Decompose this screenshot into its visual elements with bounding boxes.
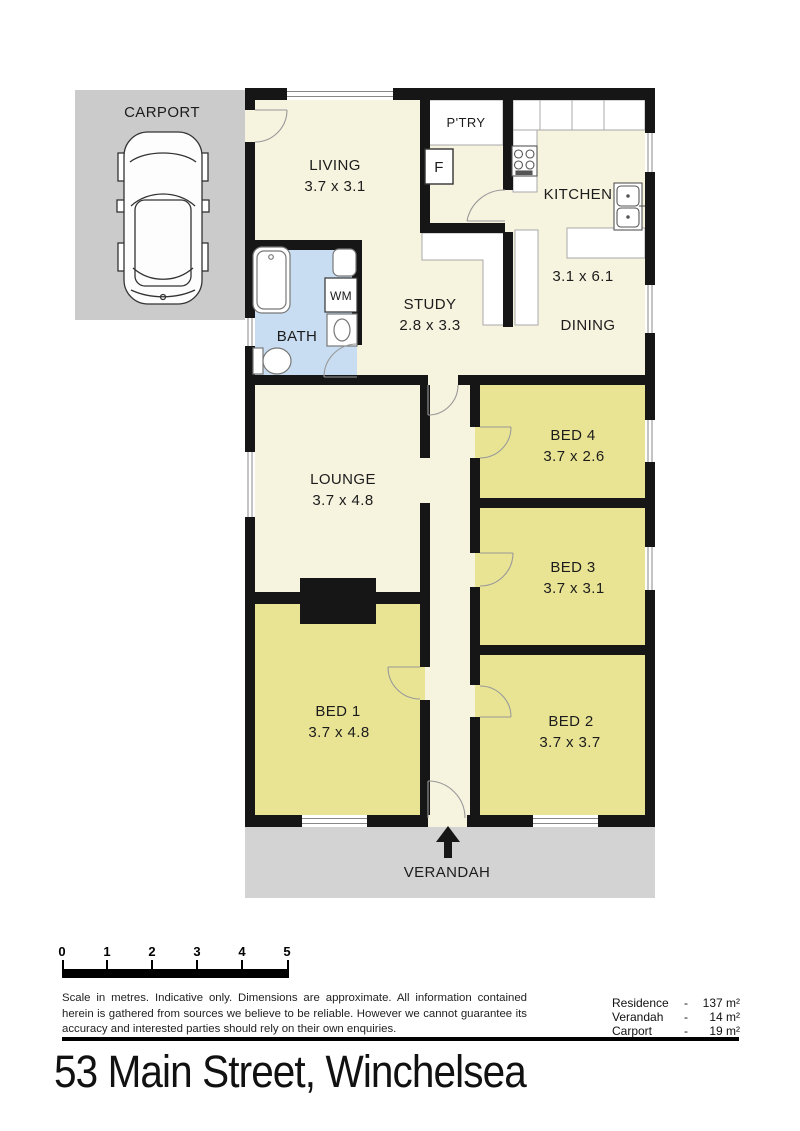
wall-hall-right-a [470,385,480,427]
pantry-label: P'TRY [447,115,486,130]
area-dash: - [684,1010,688,1024]
bathtub-icon [253,247,290,313]
scale-bar-rule [62,969,289,978]
area-label: Verandah [612,1010,682,1024]
fireplace [300,578,376,624]
bed1-dims: 3.7 x 4.8 [308,724,369,741]
basin-icon [333,249,356,276]
bath-label: BATH [277,328,318,345]
carport-area [75,90,245,320]
bed3-label: BED 3 [550,559,595,576]
window-bed3-right [645,547,655,590]
window-living-top [287,88,393,100]
carport-label: CARPORT [124,104,200,121]
scale-tick-label-0: 0 [58,944,65,959]
wm-label: WM [330,289,352,303]
study-dims: 2.8 x 3.3 [399,317,460,334]
area-row-carport: Carport - 19 m² [612,1024,740,1038]
bed2-label: BED 2 [548,713,593,730]
scale-tick-label-1: 1 [103,944,110,959]
bed1-label: BED 1 [315,703,360,720]
wall-bed3-bed2 [470,645,655,655]
wall-mid-right [458,375,655,385]
scale-tick [287,960,289,969]
dining-bench [567,228,645,258]
area-value: 137 m² [694,996,740,1010]
area-summary: Residence - 137 m² Verandah - 14 m² Carp… [612,996,740,1038]
bed3-dims: 3.7 x 3.1 [543,580,604,597]
scale-tick [62,960,64,969]
toilet-icon [253,348,291,374]
study-label: STUDY [404,296,457,313]
bed2-dims: 3.7 x 3.7 [539,734,600,751]
kitchen-bench-top [513,100,645,130]
opening-carport-door [245,110,255,142]
window-lounge-left [245,452,255,517]
scale-tick [106,960,108,969]
verandah-label: VERANDAH [404,864,491,881]
area-value: 14 m² [694,1010,740,1024]
wall-living-study [420,223,505,233]
fridge-label: F [434,159,444,176]
window-bath-left [245,318,255,346]
area-label: Residence [612,996,682,1010]
disclaimer-text: Scale in metres. Indicative only. Dimens… [62,991,527,1038]
dining-label: DINING [561,317,616,334]
area-dash: - [684,996,688,1010]
floorplan-page: CARPORT LIVING 3.7 x 3.1 P'TRY F KITCHEN… [0,0,800,1131]
car-icon [117,132,209,304]
wall-hall-right-d [470,717,480,815]
divider-rule [62,1037,739,1041]
window-bed4-right [645,420,655,462]
kitchen-dining-dims: 3.1 x 6.1 [552,268,613,285]
living-dims: 3.7 x 3.1 [304,178,365,195]
window-kitchen-right [645,133,655,172]
living-label: LIVING [309,157,361,174]
stove-icon [512,146,537,176]
area-row-residence: Residence - 137 m² [612,996,740,1010]
wall-kitchen-lower [503,232,513,327]
scale-tick-label-5: 5 [283,944,290,959]
area-value: 19 m² [694,1024,740,1038]
window-dining-right [645,285,655,333]
opening-front-door [428,815,467,827]
wall-bed4-bed3 [470,498,655,508]
lounge-dims: 3.7 x 4.8 [312,492,373,509]
kitchen-label: KITCHEN [544,186,613,203]
scale-tick [151,960,153,969]
wall-hall-right-c [470,587,480,685]
kitchen-bench-side [515,230,538,325]
window-bed2-bottom [533,815,598,827]
room-bed3 [475,503,650,650]
scale-tick [241,960,243,969]
window-bed1-bottom [302,815,367,827]
area-dash: - [684,1024,688,1038]
property-address: 53 Main Street, Winchelsea [54,1046,526,1098]
laundry-trough-icon [327,314,357,346]
scale-tick-label-4: 4 [238,944,245,959]
scale-tick-label-2: 2 [148,944,155,959]
scale-tick-label-3: 3 [193,944,200,959]
lounge-label: LOUNGE [310,471,376,488]
bed4-dims: 3.7 x 2.6 [543,448,604,465]
bed4-label: BED 4 [550,427,595,444]
kitchen-sink-icon [614,183,645,230]
wall-hall-left-b [420,503,430,667]
scale-tick [196,960,198,969]
floorplan-drawing: CARPORT LIVING 3.7 x 3.1 P'TRY F KITCHEN… [0,0,800,910]
area-label: Carport [612,1024,682,1038]
area-row-verandah: Verandah - 14 m² [612,1010,740,1024]
